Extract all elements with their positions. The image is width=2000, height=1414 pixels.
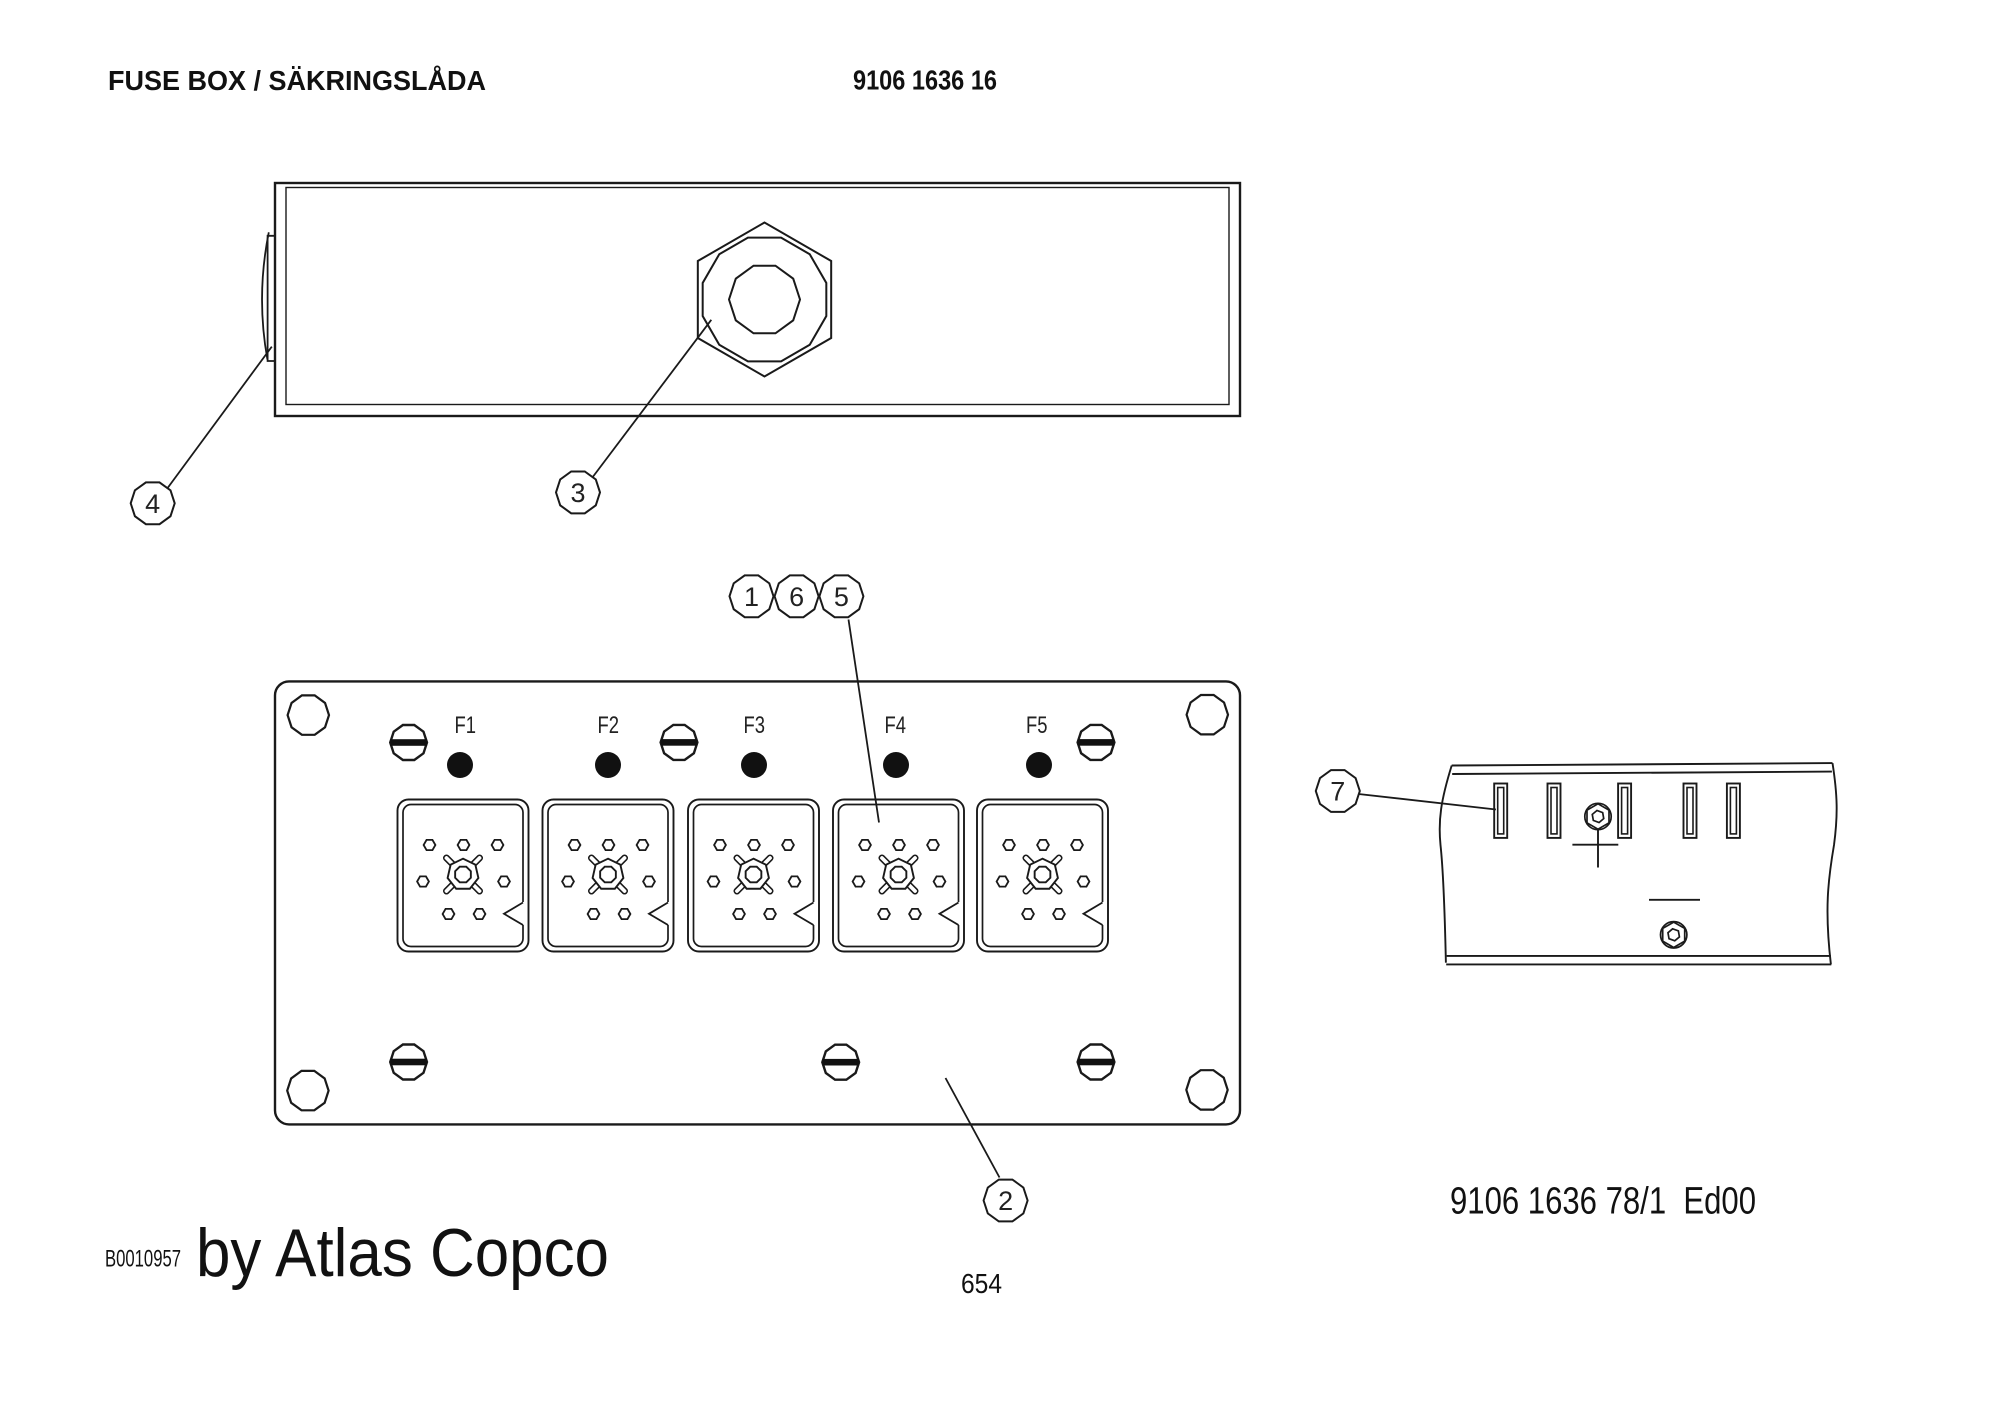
svg-text:F5: F5 <box>1026 712 1048 739</box>
svg-text:by Atlas Copco: by Atlas Copco <box>196 1215 609 1291</box>
svg-text:654: 654 <box>961 1268 1002 1299</box>
svg-text:2: 2 <box>998 1186 1013 1216</box>
svg-text:F4: F4 <box>885 712 907 739</box>
svg-text:1: 1 <box>744 582 759 612</box>
svg-text:F1: F1 <box>455 712 477 739</box>
svg-text:6: 6 <box>789 582 804 612</box>
svg-text:B0010957: B0010957 <box>105 1246 181 1273</box>
svg-text:9106 1636 78/1 Ed00: 9106 1636 78/1 Ed00 <box>1450 1181 1756 1223</box>
svg-text:4: 4 <box>145 489 160 519</box>
svg-text:3: 3 <box>570 478 585 508</box>
svg-text:9106 1636 16: 9106 1636 16 <box>853 65 997 96</box>
svg-text:7: 7 <box>1330 777 1345 807</box>
svg-text:FUSE BOX / SÄKRINGSLÅDA: FUSE BOX / SÄKRINGSLÅDA <box>108 65 486 96</box>
svg-text:5: 5 <box>834 582 849 612</box>
svg-text:F3: F3 <box>744 712 766 739</box>
svg-text:F2: F2 <box>598 712 620 739</box>
